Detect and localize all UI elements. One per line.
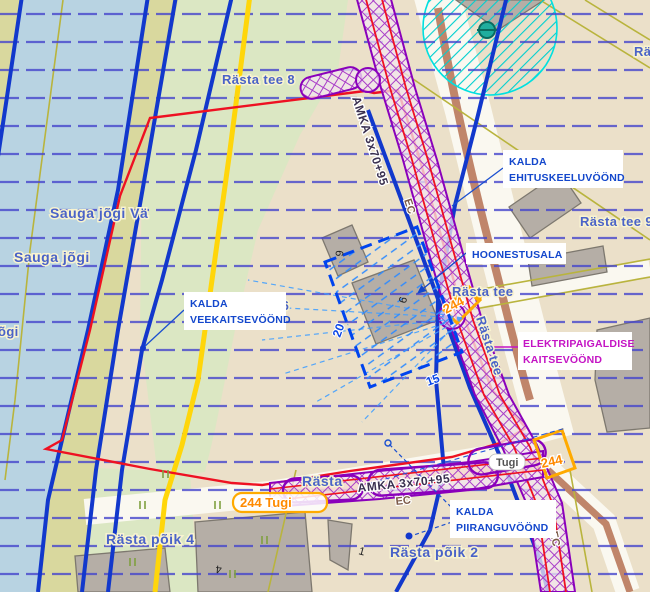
leader-dot-veekaitse <box>140 345 146 351</box>
street-rasta-tee-9: Rästa tee 9 <box>580 214 650 229</box>
tugi-pill-label: Tugi <box>496 457 518 469</box>
corridor-junction-top <box>356 68 380 92</box>
callout-veekaitsevoond: KALDA VEEKAITSEVÖÖND <box>184 292 291 330</box>
callout-text: HOONESTUSALA <box>472 249 563 261</box>
callout-text: PIIRANGUVÖÖND <box>456 521 549 534</box>
street-rasta-tee-8: Rästa tee 8 <box>222 72 295 87</box>
callout-text: KALDA <box>190 298 228 310</box>
gis-map-view: 20 15 AMKA 3x70+95 EC Rästa AMKA 3x70+95… <box>0 0 650 592</box>
house-number-6: 6 <box>332 250 344 257</box>
callout-ehituskeeluvoond: KALDA EHITUSKEELUVÖÖND <box>503 150 625 188</box>
street-sauga-jogi-va: Sauga jõgi Vä <box>50 205 148 221</box>
callout-text: EHITUSKEELUVÖÖND <box>509 171 625 184</box>
street-rasta-poik-4: Rästa põik 4 <box>106 531 194 547</box>
callout-text: VEEKAITSEVÖÖND <box>190 313 291 326</box>
tugi-pill: Tugi <box>489 454 525 470</box>
leader-dot-piirangu-2 <box>406 533 413 540</box>
callout-piiranguvoond: KALDA PIIRANGUVÖÖND <box>450 500 556 538</box>
callout-text: ELEKTRIPAIGALDISE <box>523 338 635 350</box>
cable-label-ec-bottom: EC <box>395 494 412 508</box>
street-sauga-jogi: Sauga jõgi <box>14 249 90 265</box>
callout-text: KALDA <box>509 156 547 168</box>
house-number-4: 4 <box>215 562 222 574</box>
street-rasta-tee-h: Rästa tee <box>452 284 513 299</box>
street-rasta-partial: Rästa <box>302 473 343 489</box>
street-jogi-partial: õgi <box>0 324 19 339</box>
map-canvas[interactable]: 20 15 AMKA 3x70+95 EC Rästa AMKA 3x70+95… <box>0 0 650 592</box>
support-label-244-tugi: 244 Tugi <box>240 495 292 510</box>
callout-text: KAITSEVÖÖND <box>523 353 602 366</box>
callout-text: KALDA <box>456 506 494 518</box>
callout-elektripaigaldise: ELEKTRIPAIGALDISE KAITSEVÖÖND <box>518 332 635 370</box>
street-ra-partial: Rä <box>634 44 650 59</box>
callout-hoonestusala: HOONESTUSALA <box>466 243 566 264</box>
street-rasta-poik-2: Rästa põik 2 <box>390 544 478 560</box>
